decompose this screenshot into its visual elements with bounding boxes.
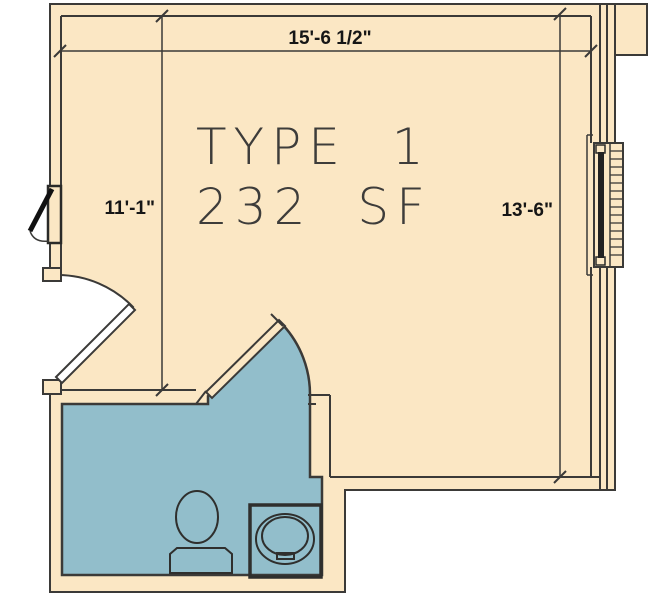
unit-area-label: 232 SF bbox=[196, 178, 432, 236]
dimension-right-label: 13'-6" bbox=[501, 200, 553, 221]
floor-plan-page: 15'-6 1/2" 11'-1" 13'-6" TYPE 1 232 SF bbox=[0, 0, 650, 600]
entry-jamb-bottom bbox=[43, 380, 61, 394]
dimension-top-label: 15'-6 1/2" bbox=[288, 28, 371, 49]
window-glazing-cap-top bbox=[596, 145, 605, 153]
entry-jamb-top bbox=[43, 268, 61, 281]
wall-vent-flap bbox=[30, 186, 61, 243]
dimension-left-label: 11'-1" bbox=[104, 198, 155, 219]
window-glazing bbox=[598, 152, 604, 258]
floor-plan-svg: 15'-6 1/2" 11'-1" 13'-6" TYPE 1 232 SF bbox=[0, 0, 650, 600]
window-glazing-cap-bottom bbox=[596, 257, 605, 265]
unit-type-label: TYPE 1 bbox=[196, 118, 431, 176]
